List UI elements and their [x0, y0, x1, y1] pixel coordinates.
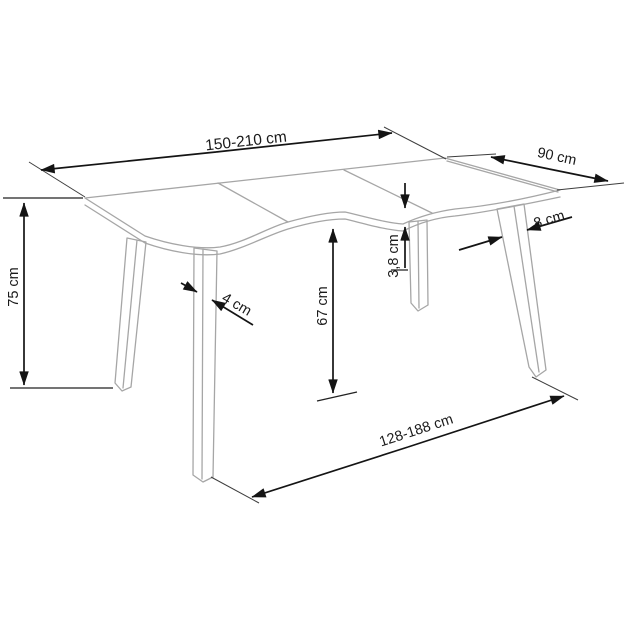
furniture-dimension-diagram: 150-210 cm 90 cm 75 cm 4 cm 67 cm 3,8 cm [0, 0, 625, 625]
dimension-label-clearance: 67 cm [315, 286, 331, 326]
dimension-label-table-length: 150-210 cm [204, 129, 287, 155]
table-drawing-canvas: 150-210 cm 90 cm 75 cm 4 cm 67 cm 3,8 cm [0, 0, 625, 625]
extension-line [447, 154, 496, 157]
dimension-label-table-height: 75 cm [6, 267, 22, 307]
dimension-front-leg-thickness: 4 cm [181, 283, 254, 325]
dimension-table-height: 75 cm [3, 198, 113, 388]
dimension-leg-span: 128-188 cm [211, 377, 578, 503]
floor-mark [317, 392, 357, 401]
extension-line [557, 183, 624, 190]
dimension-label-back-leg-width: 8 cm [532, 208, 567, 232]
extension-line [384, 127, 446, 159]
table-leg-back-left [115, 238, 146, 391]
extension-line [532, 377, 578, 400]
tabletop-surface [85, 158, 560, 248]
extension-line [211, 477, 259, 503]
table-leg-front-left [193, 248, 217, 482]
dimension-label-table-depth: 90 cm [536, 145, 578, 169]
dimension-label-top-thickness: 3,8 cm [386, 234, 402, 278]
dimension-clearance: 67 cm [315, 229, 357, 401]
table-leg-front-right [409, 220, 428, 311]
extension-line [29, 162, 85, 197]
